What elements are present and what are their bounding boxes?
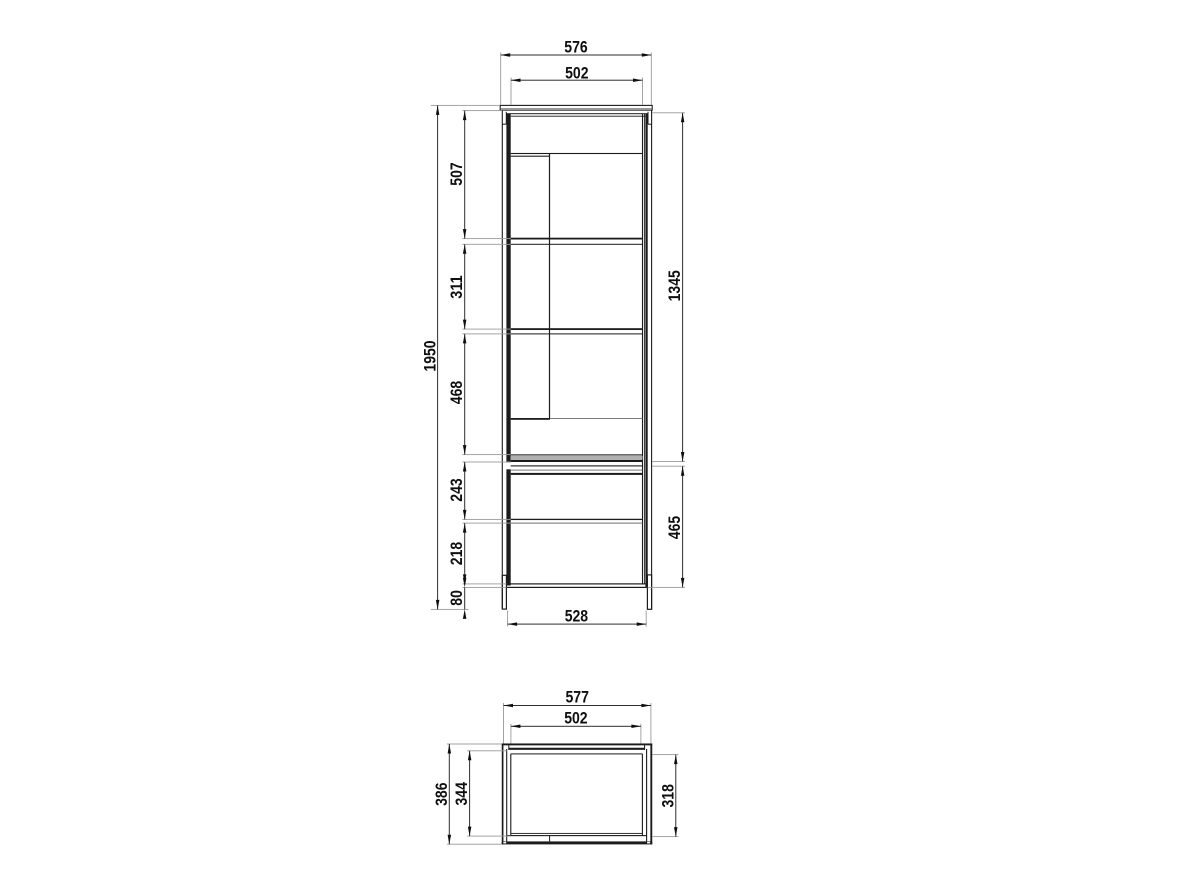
svg-text:465: 465: [666, 516, 684, 539]
svg-text:577: 577: [566, 689, 589, 707]
svg-text:344: 344: [453, 782, 471, 805]
svg-text:218: 218: [448, 542, 466, 565]
svg-text:1950: 1950: [422, 340, 440, 371]
svg-text:507: 507: [448, 162, 466, 185]
svg-text:243: 243: [448, 478, 466, 501]
svg-text:386: 386: [433, 783, 451, 806]
svg-text:528: 528: [565, 607, 588, 625]
svg-text:576: 576: [564, 39, 587, 57]
svg-text:311: 311: [448, 275, 466, 298]
svg-text:468: 468: [448, 381, 466, 404]
svg-text:80: 80: [448, 590, 466, 606]
svg-text:502: 502: [564, 709, 587, 727]
svg-text:1345: 1345: [666, 270, 684, 301]
svg-text:318: 318: [659, 784, 677, 807]
svg-text:502: 502: [565, 64, 588, 82]
